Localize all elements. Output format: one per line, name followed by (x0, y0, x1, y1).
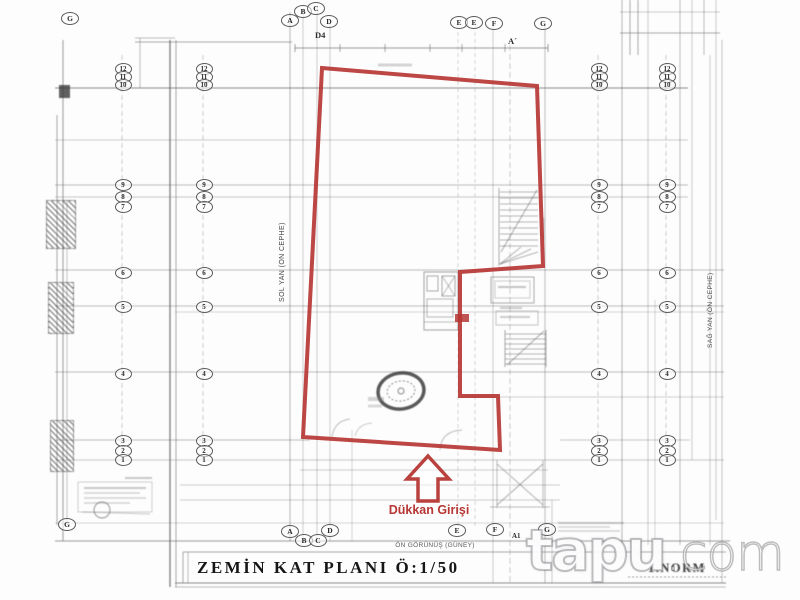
grid-number: 10 (659, 79, 676, 91)
grid-number: 7 (196, 201, 213, 213)
grid-number: 1 (196, 454, 213, 466)
parcel-boundary (303, 68, 543, 450)
grid-number: 10 (196, 79, 213, 91)
grid-number: 10 (115, 79, 132, 91)
floor-plan-image: GABCDEEFGGABCDEFG12111098765432112111098… (0, 0, 800, 600)
plan-title: ZEMİN KAT PLANI Ö:1/50 (197, 558, 460, 578)
grid-number: 6 (115, 267, 132, 279)
grid-number: 10 (591, 79, 608, 91)
entrance-arrow (407, 456, 449, 501)
left-facade-label: SOL YAN (ÖN CEPHE) (279, 222, 286, 302)
grid-letter-bottom: E (448, 524, 466, 537)
grid-number: 6 (659, 267, 676, 279)
grid-letter-bottom: F (486, 523, 504, 536)
grid-letter-top: G (61, 12, 79, 25)
grid-letter-top: E (465, 16, 483, 29)
grid-number: 7 (591, 201, 608, 213)
watermark-suffix: .com (665, 524, 784, 582)
grid-number: 6 (196, 267, 213, 279)
grid-number: 1 (591, 454, 608, 466)
right-facade-label: SAĞ YAN (ÖN CEPHE) (707, 272, 714, 348)
grid-letter-bottom: G (58, 518, 76, 531)
grid-number: 4 (196, 368, 213, 380)
grid-number: 9 (591, 179, 608, 191)
grid-number: 9 (196, 179, 213, 191)
grid-number: 7 (659, 201, 676, 213)
grid-number: 4 (115, 368, 132, 380)
grid-number: 5 (659, 301, 676, 313)
watermark: tapu.com (526, 518, 784, 584)
grid-letter-top: F (485, 17, 503, 30)
grid-number: 7 (115, 201, 132, 213)
watermark-brand: tapu (526, 518, 665, 584)
shop-entrance-label: Dükkan Girişi (381, 503, 477, 517)
grid-letter-bottom: D (321, 524, 339, 537)
grid-mark-a1: A1 (512, 532, 521, 540)
grid-number: 4 (591, 368, 608, 380)
grid-number: 1 (115, 454, 132, 466)
grid-letter-top: G (534, 17, 552, 30)
front-view-caption: ÖN GÖRÜNÜŞ (GÜNEY) (380, 542, 490, 549)
grid-number: 6 (591, 267, 608, 279)
grid-number: 5 (591, 301, 608, 313)
grid-number: 1 (659, 454, 676, 466)
grid-number: 9 (659, 179, 676, 191)
section-mark: A´ (508, 36, 517, 46)
grid-mark-d4: D4 (315, 30, 325, 40)
grid-letter-top: D (320, 15, 338, 28)
grid-number: 5 (115, 301, 132, 313)
grid-number: 5 (196, 301, 213, 313)
grid-number: 4 (659, 368, 676, 380)
grid-letter-top: C (307, 2, 325, 15)
grid-number: 9 (115, 179, 132, 191)
